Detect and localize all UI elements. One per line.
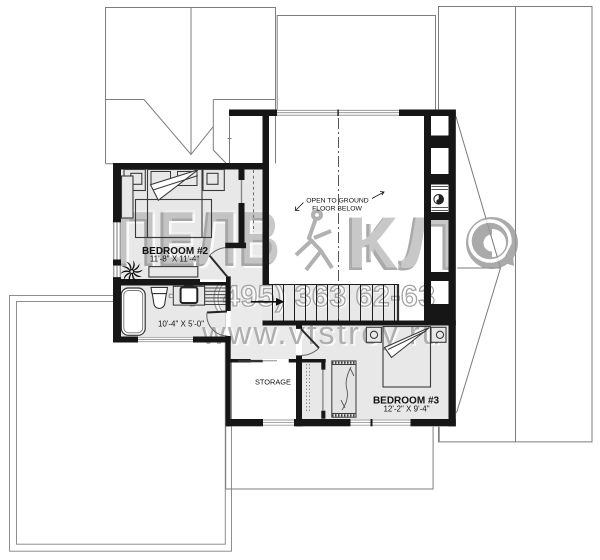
svg-text:12'-2" X 9'-4": 12'-2" X 9'-4"	[383, 405, 429, 414]
svg-text:STORAGE: STORAGE	[255, 378, 291, 387]
svg-text:10'-4" X 5'-0": 10'-4" X 5'-0"	[158, 320, 204, 329]
svg-text:FLOOR BELOW: FLOOR BELOW	[312, 206, 362, 213]
svg-text:ПЕЛВ: ПЕЛВ	[117, 193, 283, 281]
svg-text:11'-8" X 11'-4": 11'-8" X 11'-4"	[150, 255, 200, 264]
svg-text:OPEN TO GROUND: OPEN TO GROUND	[306, 198, 369, 205]
